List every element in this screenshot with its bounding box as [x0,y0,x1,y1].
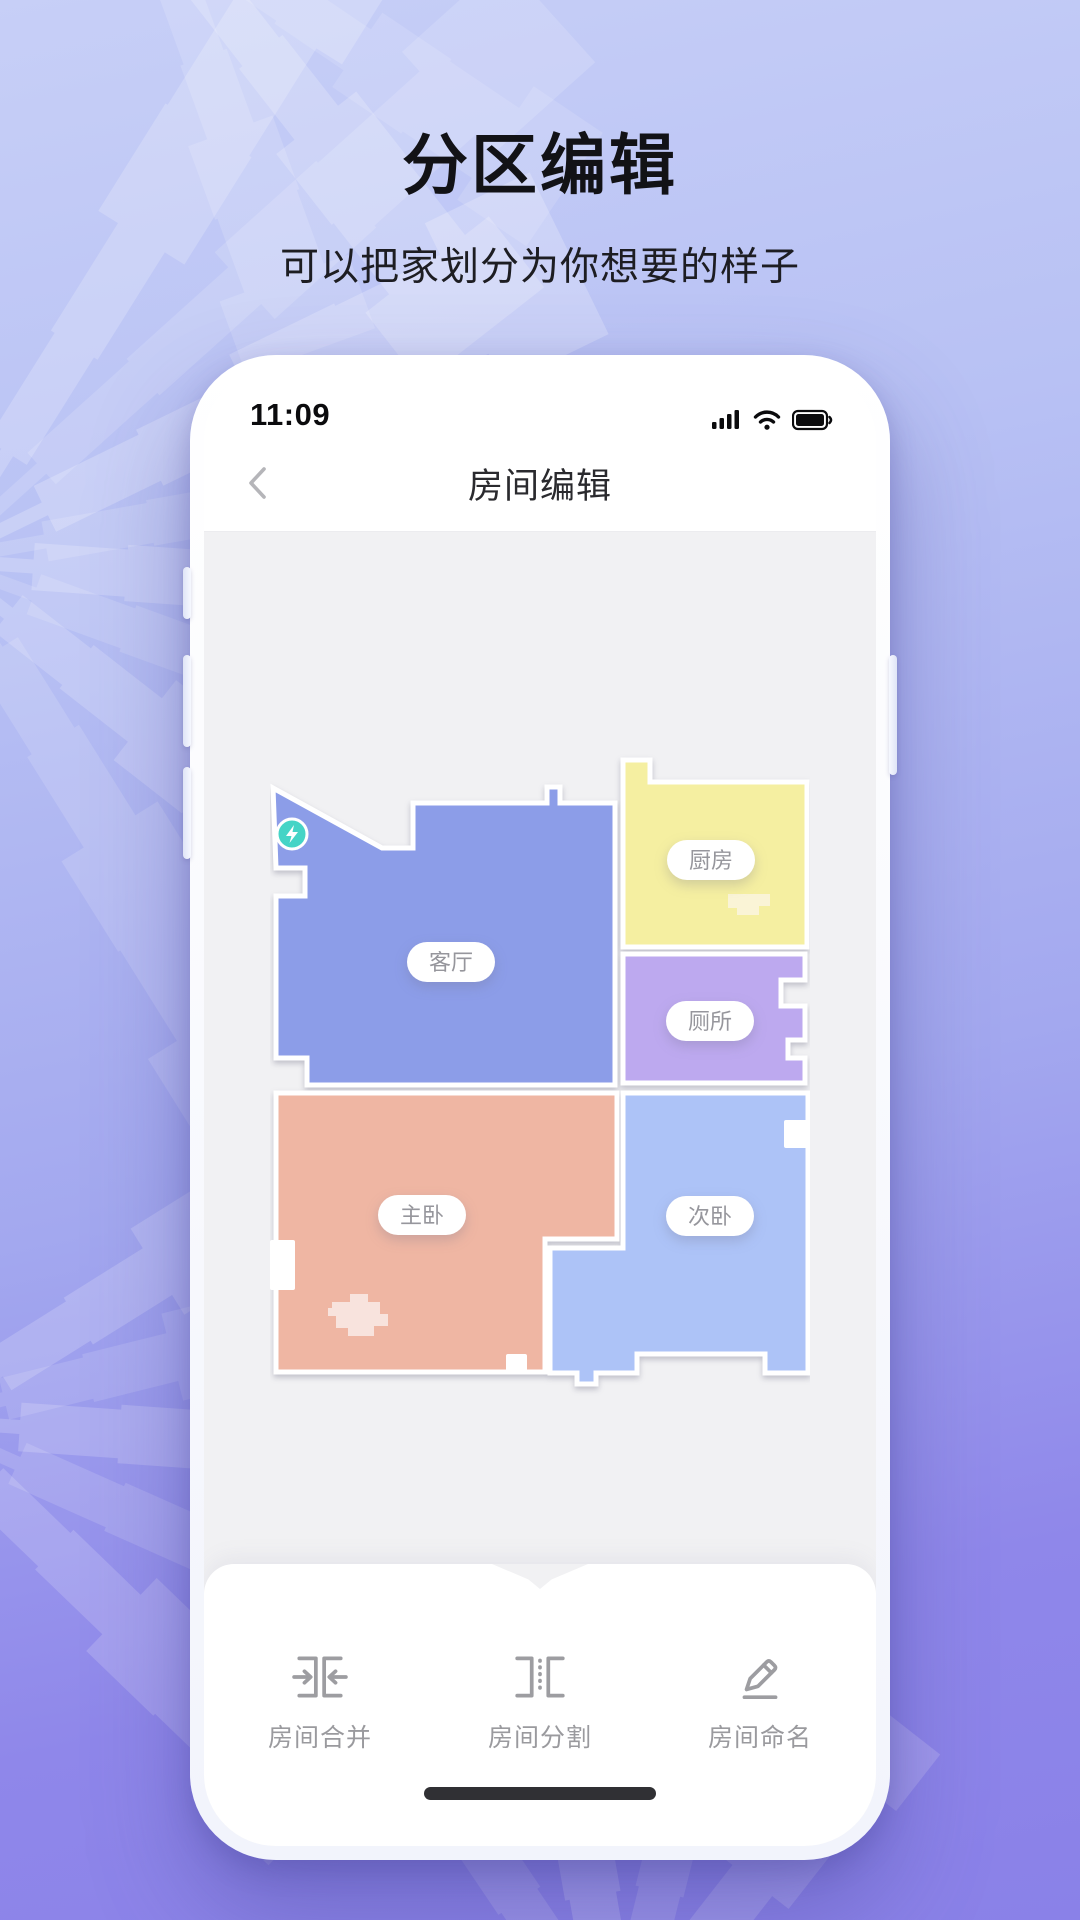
room-living[interactable] [273,787,615,1085]
status-bar: 11:09 [204,369,876,435]
chevron-left-icon [246,465,270,501]
charging-dock-icon[interactable] [277,819,307,849]
battery-icon [792,409,834,431]
rename-rooms-icon [731,1648,789,1706]
room-label-toilet: 厕所 [688,1009,732,1034]
rename-rooms-label: 房间命名 [708,1718,812,1754]
phone-mockup: 11:09 [190,355,890,1860]
mute-switch [183,567,191,619]
page-subtitle: 可以把家划分为你想要的样子 [0,236,1080,292]
page-title: 分区编辑 [0,112,1080,208]
split-rooms-icon [511,1648,569,1706]
signal-icon [712,409,742,431]
room-label-second: 次卧 [688,1204,732,1229]
power-button [889,655,897,775]
room-label-kitchen: 厨房 [689,848,733,873]
status-time: 11:09 [250,397,330,433]
volume-down-button [183,767,191,859]
nav-title: 房间编辑 [468,458,612,509]
back-button[interactable] [238,463,278,503]
split-rooms-button[interactable]: 房间分割 [455,1648,625,1754]
room-label-living: 客厅 [429,950,473,975]
volume-up-button [183,655,191,747]
merge-rooms-label: 房间合并 [268,1718,372,1754]
rename-rooms-button[interactable]: 房间命名 [675,1648,845,1754]
home-indicator [424,1787,656,1800]
status-icons [712,409,834,433]
floorplan: 客厅 厨房 厕所 主卧 次卧 [270,742,810,1402]
bottom-panel: 房间合并 房间分割 房间命名 [204,1564,876,1846]
split-rooms-label: 房间分割 [488,1718,592,1754]
room-label-master: 主卧 [400,1203,444,1228]
nav-bar: 房间编辑 [204,435,876,531]
wifi-icon [753,409,781,431]
toolbar: 房间合并 房间分割 房间命名 [204,1564,876,1754]
phone-screen: 11:09 [204,369,876,1846]
merge-rooms-button[interactable]: 房间合并 [235,1648,405,1754]
merge-rooms-icon [291,1648,349,1706]
